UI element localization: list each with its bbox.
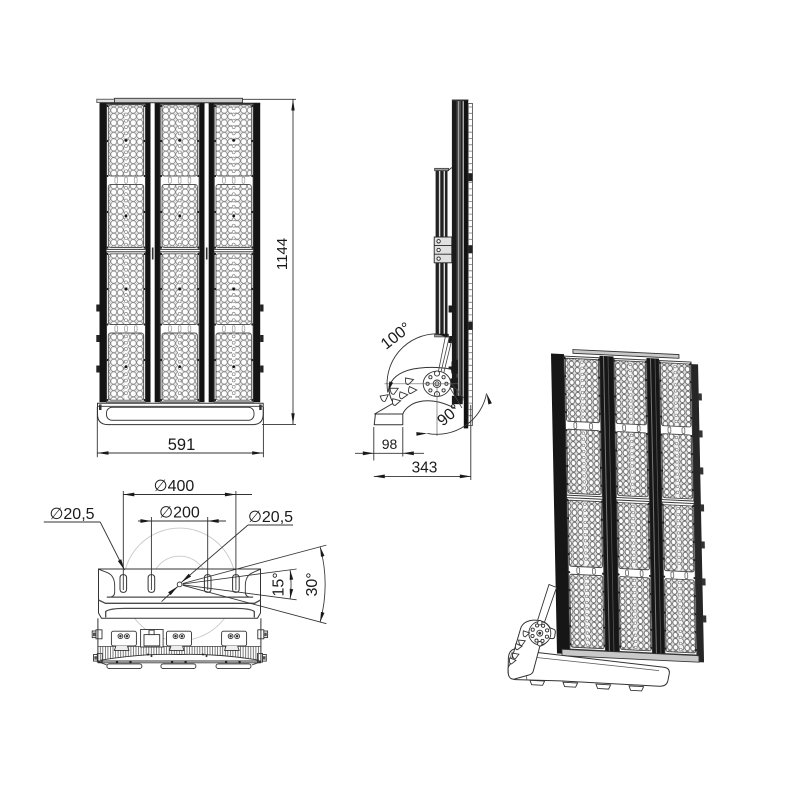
svg-text:1144: 1144 bbox=[274, 238, 291, 270]
svg-text:343: 343 bbox=[412, 460, 438, 477]
svg-text:∅400: ∅400 bbox=[154, 478, 195, 495]
svg-text:591: 591 bbox=[168, 436, 196, 454]
svg-text:15°: 15° bbox=[271, 572, 288, 596]
svg-text:98: 98 bbox=[382, 436, 398, 452]
svg-text:∅20,5: ∅20,5 bbox=[49, 506, 94, 523]
svg-text:∅20,5: ∅20,5 bbox=[248, 509, 293, 526]
svg-text:30°: 30° bbox=[304, 572, 321, 596]
svg-text:∅200: ∅200 bbox=[159, 505, 200, 522]
